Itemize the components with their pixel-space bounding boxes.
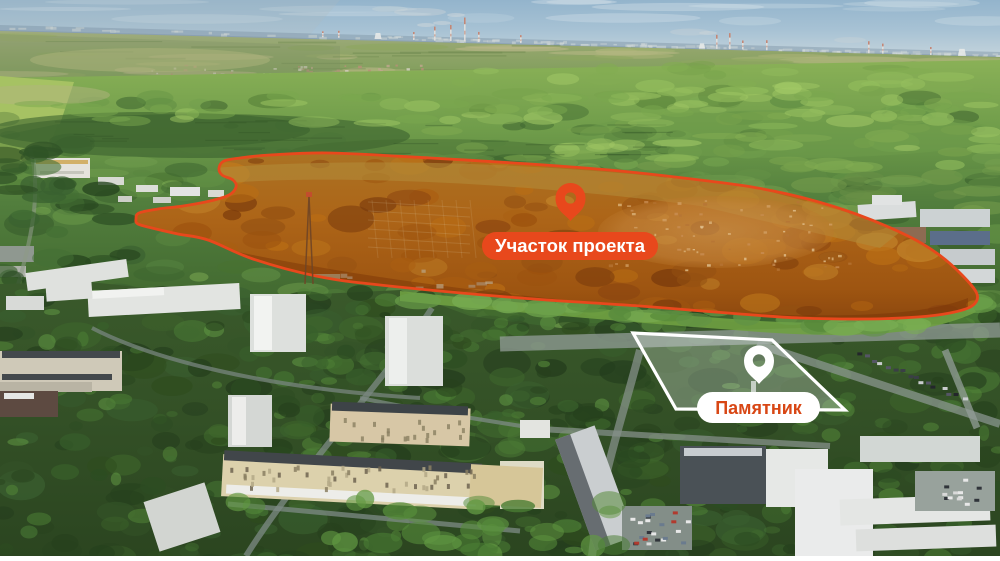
svg-text:Памятник: Памятник — [715, 398, 803, 418]
svg-text:Участок проекта: Участок проекта — [495, 235, 646, 256]
